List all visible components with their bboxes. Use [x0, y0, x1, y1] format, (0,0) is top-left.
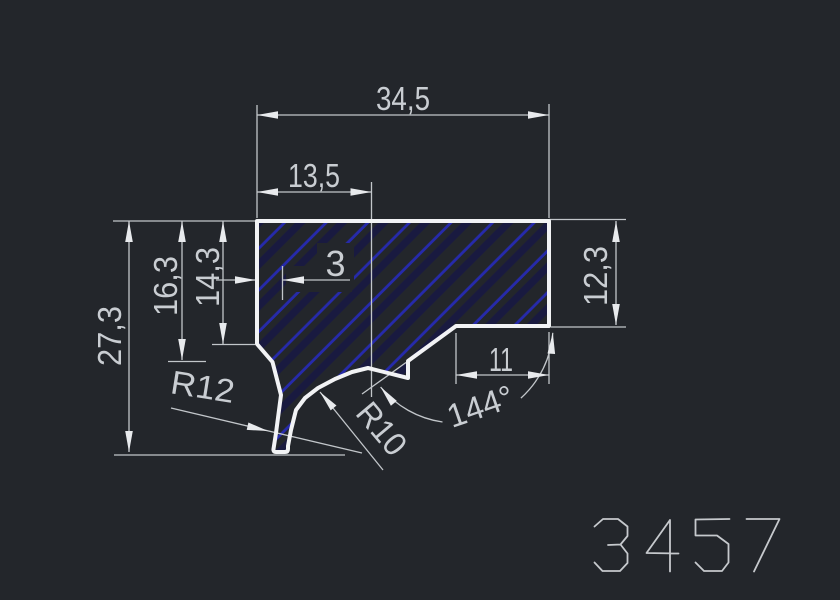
svg-text:11: 11	[489, 341, 513, 378]
svg-text:34,5: 34,5	[376, 80, 430, 117]
svg-text:27,3: 27,3	[91, 306, 128, 366]
svg-text:12,3: 12,3	[577, 246, 614, 306]
svg-text:3: 3	[325, 243, 345, 284]
svg-text:14,3: 14,3	[189, 247, 226, 307]
svg-text:16,3: 16,3	[147, 256, 184, 316]
svg-text:13,5: 13,5	[288, 157, 340, 194]
